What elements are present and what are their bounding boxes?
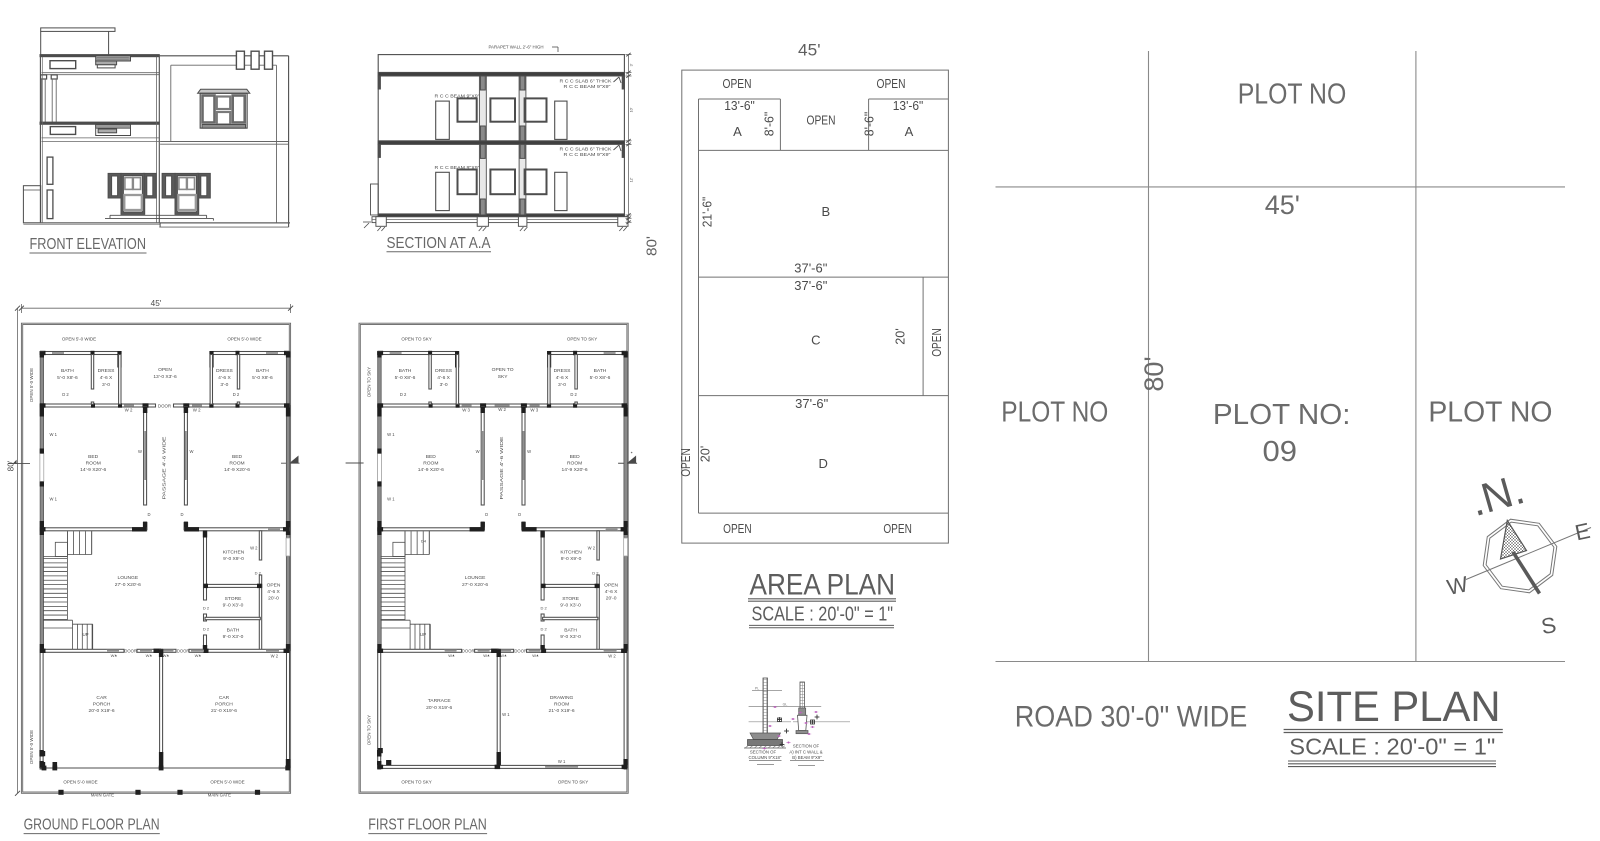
svg-text:SCALE : 20'-0" = 1": SCALE : 20'-0" = 1" bbox=[752, 603, 894, 626]
svg-text:UP: UP bbox=[420, 632, 426, 637]
svg-text:W 1: W 1 bbox=[387, 497, 395, 502]
svg-text:A: A bbox=[905, 124, 914, 139]
svg-text:D 2: D 2 bbox=[233, 392, 240, 397]
svg-text:DOOR: DOOR bbox=[462, 648, 475, 653]
svg-text:13'-6": 13'-6" bbox=[724, 99, 755, 113]
svg-text:W 2: W 2 bbox=[250, 546, 258, 551]
svg-text:PASSAGE 4'-6 WIDE: PASSAGE 4'-6 WIDE bbox=[162, 437, 167, 500]
svg-text:13'-6": 13'-6" bbox=[893, 99, 924, 113]
svg-text:OPEN: OPEN bbox=[723, 522, 752, 536]
svg-text:14'-9 X20'-6: 14'-9 X20'-6 bbox=[80, 467, 106, 473]
svg-text:D 2: D 2 bbox=[203, 627, 210, 632]
svg-text:D 2: D 2 bbox=[62, 392, 69, 397]
svg-text:PLOT NO: PLOT NO bbox=[1001, 397, 1108, 429]
svg-text:AREA PLAN: AREA PLAN bbox=[750, 569, 896, 602]
svg-text:OPEN TO SKY: OPEN TO SKY bbox=[367, 715, 372, 745]
svg-text:OPEN: OPEN bbox=[158, 367, 172, 373]
svg-text:3'-0: 3'-0 bbox=[440, 382, 448, 388]
svg-text:W 2: W 2 bbox=[125, 408, 133, 413]
svg-text:R C C BEAM 9"X9": R C C BEAM 9"X9" bbox=[564, 84, 612, 89]
svg-text:14'-9 X20'-6: 14'-9 X20'-6 bbox=[418, 467, 444, 473]
svg-text:BATH: BATH bbox=[399, 368, 412, 374]
svg-text:R C C BEAM 9"X9": R C C BEAM 9"X9" bbox=[435, 165, 481, 170]
svg-text:D 2: D 2 bbox=[570, 392, 577, 397]
svg-text:D: D bbox=[485, 512, 488, 517]
svg-text:W 1: W 1 bbox=[387, 432, 395, 437]
svg-text:DOOR: DOOR bbox=[514, 648, 527, 653]
svg-text:W: W bbox=[1445, 571, 1471, 600]
svg-text:.N.: .N. bbox=[1465, 465, 1530, 525]
svg-text:4'-6 X: 4'-6 X bbox=[605, 589, 618, 595]
svg-text:9'-0 X3'-0: 9'-0 X3'-0 bbox=[223, 634, 244, 640]
svg-text:20'-0 X19'-6: 20'-0 X19'-6 bbox=[89, 708, 115, 714]
svg-text:CAR: CAR bbox=[96, 695, 107, 701]
svg-text:STORE: STORE bbox=[225, 596, 242, 602]
svg-text:OPEN TO SKY: OPEN TO SKY bbox=[367, 367, 372, 397]
svg-text:KITCHEN: KITCHEN bbox=[560, 550, 582, 556]
svg-text:A) INT C WALL &: A) INT C WALL & bbox=[789, 750, 822, 755]
svg-text:OPEN: OPEN bbox=[883, 522, 912, 536]
svg-text:4'-6 X: 4'-6 X bbox=[267, 589, 280, 595]
svg-text:LOUNGE: LOUNGE bbox=[117, 575, 138, 581]
svg-text:PLOT NO: PLOT NO bbox=[1428, 397, 1552, 429]
svg-text:80': 80' bbox=[644, 236, 661, 256]
svg-text:D 2: D 2 bbox=[400, 392, 407, 397]
svg-text:D: D bbox=[518, 512, 521, 517]
svg-text:DRESS: DRESS bbox=[216, 368, 234, 374]
svg-text:BED: BED bbox=[88, 454, 99, 460]
svg-text:45': 45' bbox=[1265, 190, 1300, 220]
svg-text:PASSAGE 4'-6 WIDE: PASSAGE 4'-6 WIDE bbox=[499, 437, 504, 500]
svg-text:UP: UP bbox=[82, 632, 88, 637]
svg-text:SITE PLAN: SITE PLAN bbox=[1287, 683, 1501, 731]
svg-text:45': 45' bbox=[798, 41, 821, 60]
svg-text:ROOM: ROOM bbox=[554, 702, 569, 708]
svg-text:14'-9 X20'-6: 14'-9 X20'-6 bbox=[224, 467, 250, 473]
svg-text:PLOT NO:: PLOT NO: bbox=[1213, 399, 1351, 431]
svg-text:21'-0 X19'-6: 21'-0 X19'-6 bbox=[549, 708, 575, 714]
svg-text:D: D bbox=[147, 512, 150, 517]
svg-text:D: D bbox=[180, 512, 183, 517]
svg-text:E: E bbox=[1573, 518, 1593, 546]
svg-text:R C C BEAM 9"X9": R C C BEAM 9"X9" bbox=[435, 93, 481, 98]
svg-text:27'-0 X20'-6: 27'-0 X20'-6 bbox=[115, 582, 141, 588]
svg-text:09: 09 bbox=[1263, 436, 1298, 468]
svg-text:80': 80' bbox=[7, 460, 16, 471]
svg-text:W 2: W 2 bbox=[498, 407, 506, 412]
svg-text:ROAD 30'-0" WIDE: ROAD 30'-0" WIDE bbox=[1015, 701, 1248, 734]
svg-text:OPEN 5'-0 WIDE: OPEN 5'-0 WIDE bbox=[29, 730, 34, 764]
svg-text:MAIN GATE: MAIN GATE bbox=[91, 792, 114, 797]
svg-text:W 3: W 3 bbox=[530, 408, 538, 413]
svg-text:4'-6 X: 4'-6 X bbox=[556, 375, 569, 381]
svg-text:OPEN TO SKY: OPEN TO SKY bbox=[567, 337, 597, 342]
svg-text:OPEN: OPEN bbox=[877, 77, 906, 91]
svg-text:DOOR: DOOR bbox=[158, 403, 171, 408]
svg-text:W 2: W 2 bbox=[271, 654, 279, 659]
svg-text:B: B bbox=[821, 204, 830, 219]
svg-text:20': 20' bbox=[699, 446, 713, 463]
svg-text:FIRST FLOOR PLAN: FIRST FLOOR PLAN bbox=[368, 817, 487, 834]
svg-text:OPEN 5'-0 WIDE: OPEN 5'-0 WIDE bbox=[227, 337, 261, 342]
svg-text:DRAWING: DRAWING bbox=[550, 695, 574, 701]
svg-text:OPEN 5'-0 WIDE: OPEN 5'-0 WIDE bbox=[210, 780, 244, 785]
svg-text:W 1: W 1 bbox=[558, 759, 566, 764]
svg-text:21'-0 X19'-6: 21'-0 X19'-6 bbox=[211, 708, 237, 714]
svg-text:3'-0: 3'-0 bbox=[220, 382, 228, 388]
svg-text:W: W bbox=[195, 653, 199, 658]
svg-text:OPEN: OPEN bbox=[267, 583, 281, 589]
svg-text:BATH: BATH bbox=[227, 628, 240, 634]
svg-text:CAR: CAR bbox=[219, 695, 230, 701]
svg-text:9'-0 X9'-0: 9'-0 X9'-0 bbox=[561, 556, 582, 562]
svg-text:W: W bbox=[111, 653, 115, 658]
svg-text:R C C BEAM 9"X9": R C C BEAM 9"X9" bbox=[564, 152, 612, 157]
svg-text:SECTION OF: SECTION OF bbox=[793, 744, 820, 749]
svg-text:9'-0 X3'-0: 9'-0 X3'-0 bbox=[560, 603, 581, 609]
svg-text:MAIN GATE: MAIN GATE bbox=[208, 793, 231, 798]
svg-text:W: W bbox=[190, 449, 194, 454]
svg-text:W 2: W 2 bbox=[608, 654, 616, 659]
svg-text:TARRACE: TARRACE bbox=[428, 698, 452, 704]
svg-text:DRESS: DRESS bbox=[98, 368, 116, 374]
svg-text:20'-0: 20'-0 bbox=[606, 596, 617, 602]
svg-text:R C C SLAB 6" THICK: R C C SLAB 6" THICK bbox=[560, 147, 612, 152]
svg-text:W: W bbox=[448, 653, 452, 658]
svg-text:FRONT ELEVATION: FRONT ELEVATION bbox=[30, 236, 147, 253]
svg-text:21'-6": 21'-6" bbox=[701, 197, 715, 228]
svg-text:5'-0 X8'-6: 5'-0 X8'-6 bbox=[252, 375, 273, 381]
svg-text:W 2: W 2 bbox=[193, 408, 201, 413]
svg-text:S: S bbox=[1539, 612, 1558, 639]
svg-text:3'-0: 3'-0 bbox=[102, 382, 110, 388]
svg-text:ROOM: ROOM bbox=[423, 461, 438, 467]
svg-text:DRESS: DRESS bbox=[554, 368, 572, 374]
svg-text:PLOT NO: PLOT NO bbox=[1238, 79, 1347, 111]
svg-text:9'-0 X9'-0: 9'-0 X9'-0 bbox=[223, 556, 244, 562]
svg-text:9'-0 X3'-0: 9'-0 X3'-0 bbox=[223, 603, 244, 609]
svg-text:DOOR: DOOR bbox=[177, 648, 190, 653]
svg-text:W 2: W 2 bbox=[588, 546, 596, 551]
svg-text:9'-0 X3'-0: 9'-0 X3'-0 bbox=[560, 634, 581, 640]
svg-text:14'-9 X20'-6: 14'-9 X20'-6 bbox=[562, 467, 588, 473]
svg-text:D: D bbox=[819, 456, 828, 471]
svg-text:13'-0 X3'-6: 13'-0 X3'-6 bbox=[153, 374, 177, 380]
svg-text:4'-6 X: 4'-6 X bbox=[218, 375, 231, 381]
svg-text:DOOR: DOOR bbox=[124, 648, 137, 653]
svg-text:4'-6 X: 4'-6 X bbox=[100, 375, 113, 381]
svg-text:SCALE : 20'-0" = 1": SCALE : 20'-0" = 1" bbox=[1289, 734, 1495, 760]
svg-text:W 1: W 1 bbox=[502, 712, 510, 717]
svg-text:OPEN TO SKY: OPEN TO SKY bbox=[558, 780, 588, 785]
svg-text:BED: BED bbox=[232, 454, 243, 460]
svg-text:8'-6": 8'-6" bbox=[863, 112, 877, 137]
svg-text:D 2: D 2 bbox=[255, 571, 262, 576]
svg-text:80': 80' bbox=[1139, 356, 1169, 391]
svg-text:5'-0 X8'-6: 5'-0 X8'-6 bbox=[57, 375, 78, 381]
svg-text:D 2: D 2 bbox=[203, 606, 210, 611]
svg-text:D4: D4 bbox=[421, 539, 427, 544]
svg-text:OPEN: OPEN bbox=[604, 583, 618, 589]
svg-text:5'-0 X8'-6: 5'-0 X8'-6 bbox=[395, 375, 416, 381]
svg-text:ROOM: ROOM bbox=[567, 461, 582, 467]
svg-text:ROOM: ROOM bbox=[86, 461, 101, 467]
svg-text:OPEN: OPEN bbox=[807, 114, 836, 128]
svg-text:A: A bbox=[733, 124, 742, 139]
svg-text:27'-0 X20'-6: 27'-0 X20'-6 bbox=[462, 582, 488, 588]
svg-text:20': 20' bbox=[894, 328, 908, 345]
svg-text:BATH: BATH bbox=[61, 368, 74, 374]
svg-text:12': 12' bbox=[630, 177, 634, 182]
svg-text:OPEN: OPEN bbox=[679, 448, 693, 477]
svg-text:OPEN TO: OPEN TO bbox=[492, 367, 514, 373]
svg-text:D 2: D 2 bbox=[540, 606, 547, 611]
svg-text:W: W bbox=[483, 653, 487, 658]
svg-text:GROUND FLOOR PLAN: GROUND FLOOR PLAN bbox=[24, 817, 160, 834]
svg-text:BATH: BATH bbox=[594, 368, 607, 374]
svg-text:3': 3' bbox=[630, 63, 634, 66]
svg-text:PL: PL bbox=[755, 687, 759, 691]
svg-text:OPEN: OPEN bbox=[930, 328, 944, 357]
svg-text:LOUNGE: LOUNGE bbox=[465, 575, 486, 581]
svg-text:DRESS: DRESS bbox=[435, 368, 453, 374]
svg-text:W 1: W 1 bbox=[50, 497, 58, 502]
svg-text:BED: BED bbox=[570, 454, 581, 460]
svg-text:W: W bbox=[476, 449, 480, 454]
svg-text:OPEN 5'-0 WIDE: OPEN 5'-0 WIDE bbox=[29, 368, 34, 402]
svg-text:8'-6": 8'-6" bbox=[763, 112, 777, 137]
svg-text:SECTION OF: SECTION OF bbox=[750, 750, 777, 755]
svg-text:W 1: W 1 bbox=[50, 432, 58, 437]
svg-text:5'-0 X8'-6: 5'-0 X8'-6 bbox=[590, 375, 611, 381]
svg-text:SKY: SKY bbox=[498, 374, 509, 380]
svg-text:BATH: BATH bbox=[564, 628, 577, 634]
svg-text:37'-6": 37'-6" bbox=[794, 279, 827, 293]
svg-text:W: W bbox=[146, 653, 150, 658]
svg-text:D 2: D 2 bbox=[592, 571, 599, 576]
svg-text:GL: GL bbox=[783, 703, 788, 707]
svg-text:20'-0 X19'-6: 20'-0 X19'-6 bbox=[426, 705, 452, 711]
svg-text:W: W bbox=[527, 449, 531, 454]
svg-text:BED: BED bbox=[426, 454, 437, 460]
svg-text:10': 10' bbox=[630, 107, 634, 112]
svg-text:37'-6": 37'-6" bbox=[795, 397, 828, 411]
svg-text:W 3: W 3 bbox=[462, 408, 470, 413]
svg-text:R C C SLAB 6" THICK: R C C SLAB 6" THICK bbox=[560, 79, 612, 84]
svg-text:W: W bbox=[532, 653, 536, 658]
svg-text:BATH: BATH bbox=[256, 368, 269, 374]
svg-text:KITCHEN: KITCHEN bbox=[223, 550, 245, 556]
svg-text:SECTION AT A.A: SECTION AT A.A bbox=[387, 235, 492, 252]
svg-text:OPEN: OPEN bbox=[723, 77, 752, 91]
svg-text:PORCH: PORCH bbox=[215, 702, 233, 708]
svg-text:OPEN TO SKY: OPEN TO SKY bbox=[401, 337, 431, 342]
svg-text:COLUMN 9"X18": COLUMN 9"X18" bbox=[749, 755, 782, 760]
svg-text:OPEN 5'-0 WIDE: OPEN 5'-0 WIDE bbox=[62, 337, 96, 342]
svg-text:3'-0: 3'-0 bbox=[558, 382, 566, 388]
svg-text:PARAPET WALL 2'-6" HIGH: PARAPET WALL 2'-6" HIGH bbox=[488, 45, 543, 50]
svg-text:B) BEAM 9"X9": B) BEAM 9"X9" bbox=[792, 755, 822, 760]
svg-text:STORE: STORE bbox=[562, 596, 579, 602]
svg-text:37'-6": 37'-6" bbox=[794, 261, 827, 275]
svg-text:W: W bbox=[138, 449, 142, 454]
svg-text:OPEN TO SKY: OPEN TO SKY bbox=[401, 780, 431, 785]
svg-text:OPEN 5'-0 WIDE: OPEN 5'-0 WIDE bbox=[63, 780, 97, 785]
svg-text:4'-6 X: 4'-6 X bbox=[437, 375, 450, 381]
svg-text:D 2: D 2 bbox=[540, 627, 547, 632]
svg-text:C: C bbox=[811, 333, 820, 348]
svg-text:PORCH: PORCH bbox=[93, 702, 111, 708]
svg-text:45': 45' bbox=[151, 299, 162, 308]
svg-text:ROOM: ROOM bbox=[229, 461, 244, 467]
svg-text:20'-0: 20'-0 bbox=[268, 596, 279, 602]
